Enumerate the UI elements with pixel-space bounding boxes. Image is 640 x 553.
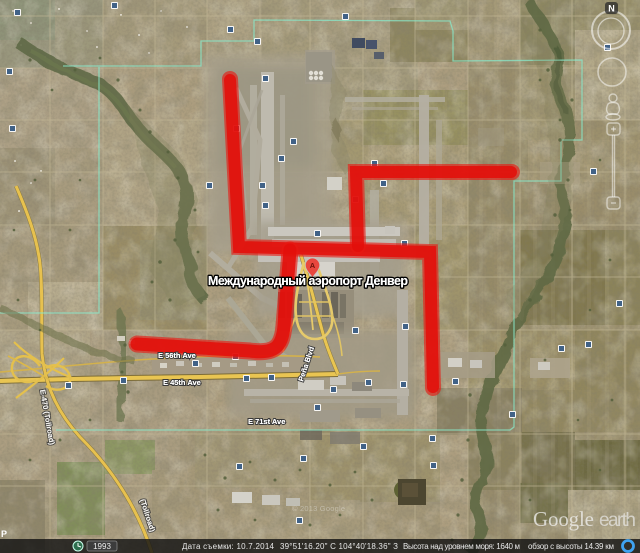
svg-text:earth: earth — [599, 510, 636, 531]
svg-text:P: P — [1, 529, 7, 539]
svg-text:E 56th Ave: E 56th Ave — [158, 351, 196, 360]
svg-text:N: N — [608, 4, 615, 14]
svg-text:1993: 1993 — [93, 542, 111, 551]
svg-text:39°51'16.20" С 104°40'18.36": 39°51'16.20" С 104°40'18.36" З — [280, 542, 398, 551]
svg-text:Дата съемки: 10.7.2014: Дата съемки: 10.7.2014 — [182, 542, 275, 551]
svg-text:E 71st Ave: E 71st Ave — [248, 417, 285, 426]
svg-text:Международный аэропорт Денвер: Международный аэропорт Денвер — [208, 274, 408, 288]
svg-text:обзор с высоты 14.39 км: обзор с высоты 14.39 км — [528, 542, 614, 551]
svg-text:E 45th Ave: E 45th Ave — [163, 378, 201, 387]
svg-text:Google: Google — [533, 507, 594, 531]
svg-text:Высота над уровнем моря: 1640: Высота над уровнем моря: 1640 м — [403, 542, 520, 551]
svg-text:A: A — [310, 261, 316, 270]
svg-text:© 2013 Google: © 2013 Google — [292, 504, 345, 513]
